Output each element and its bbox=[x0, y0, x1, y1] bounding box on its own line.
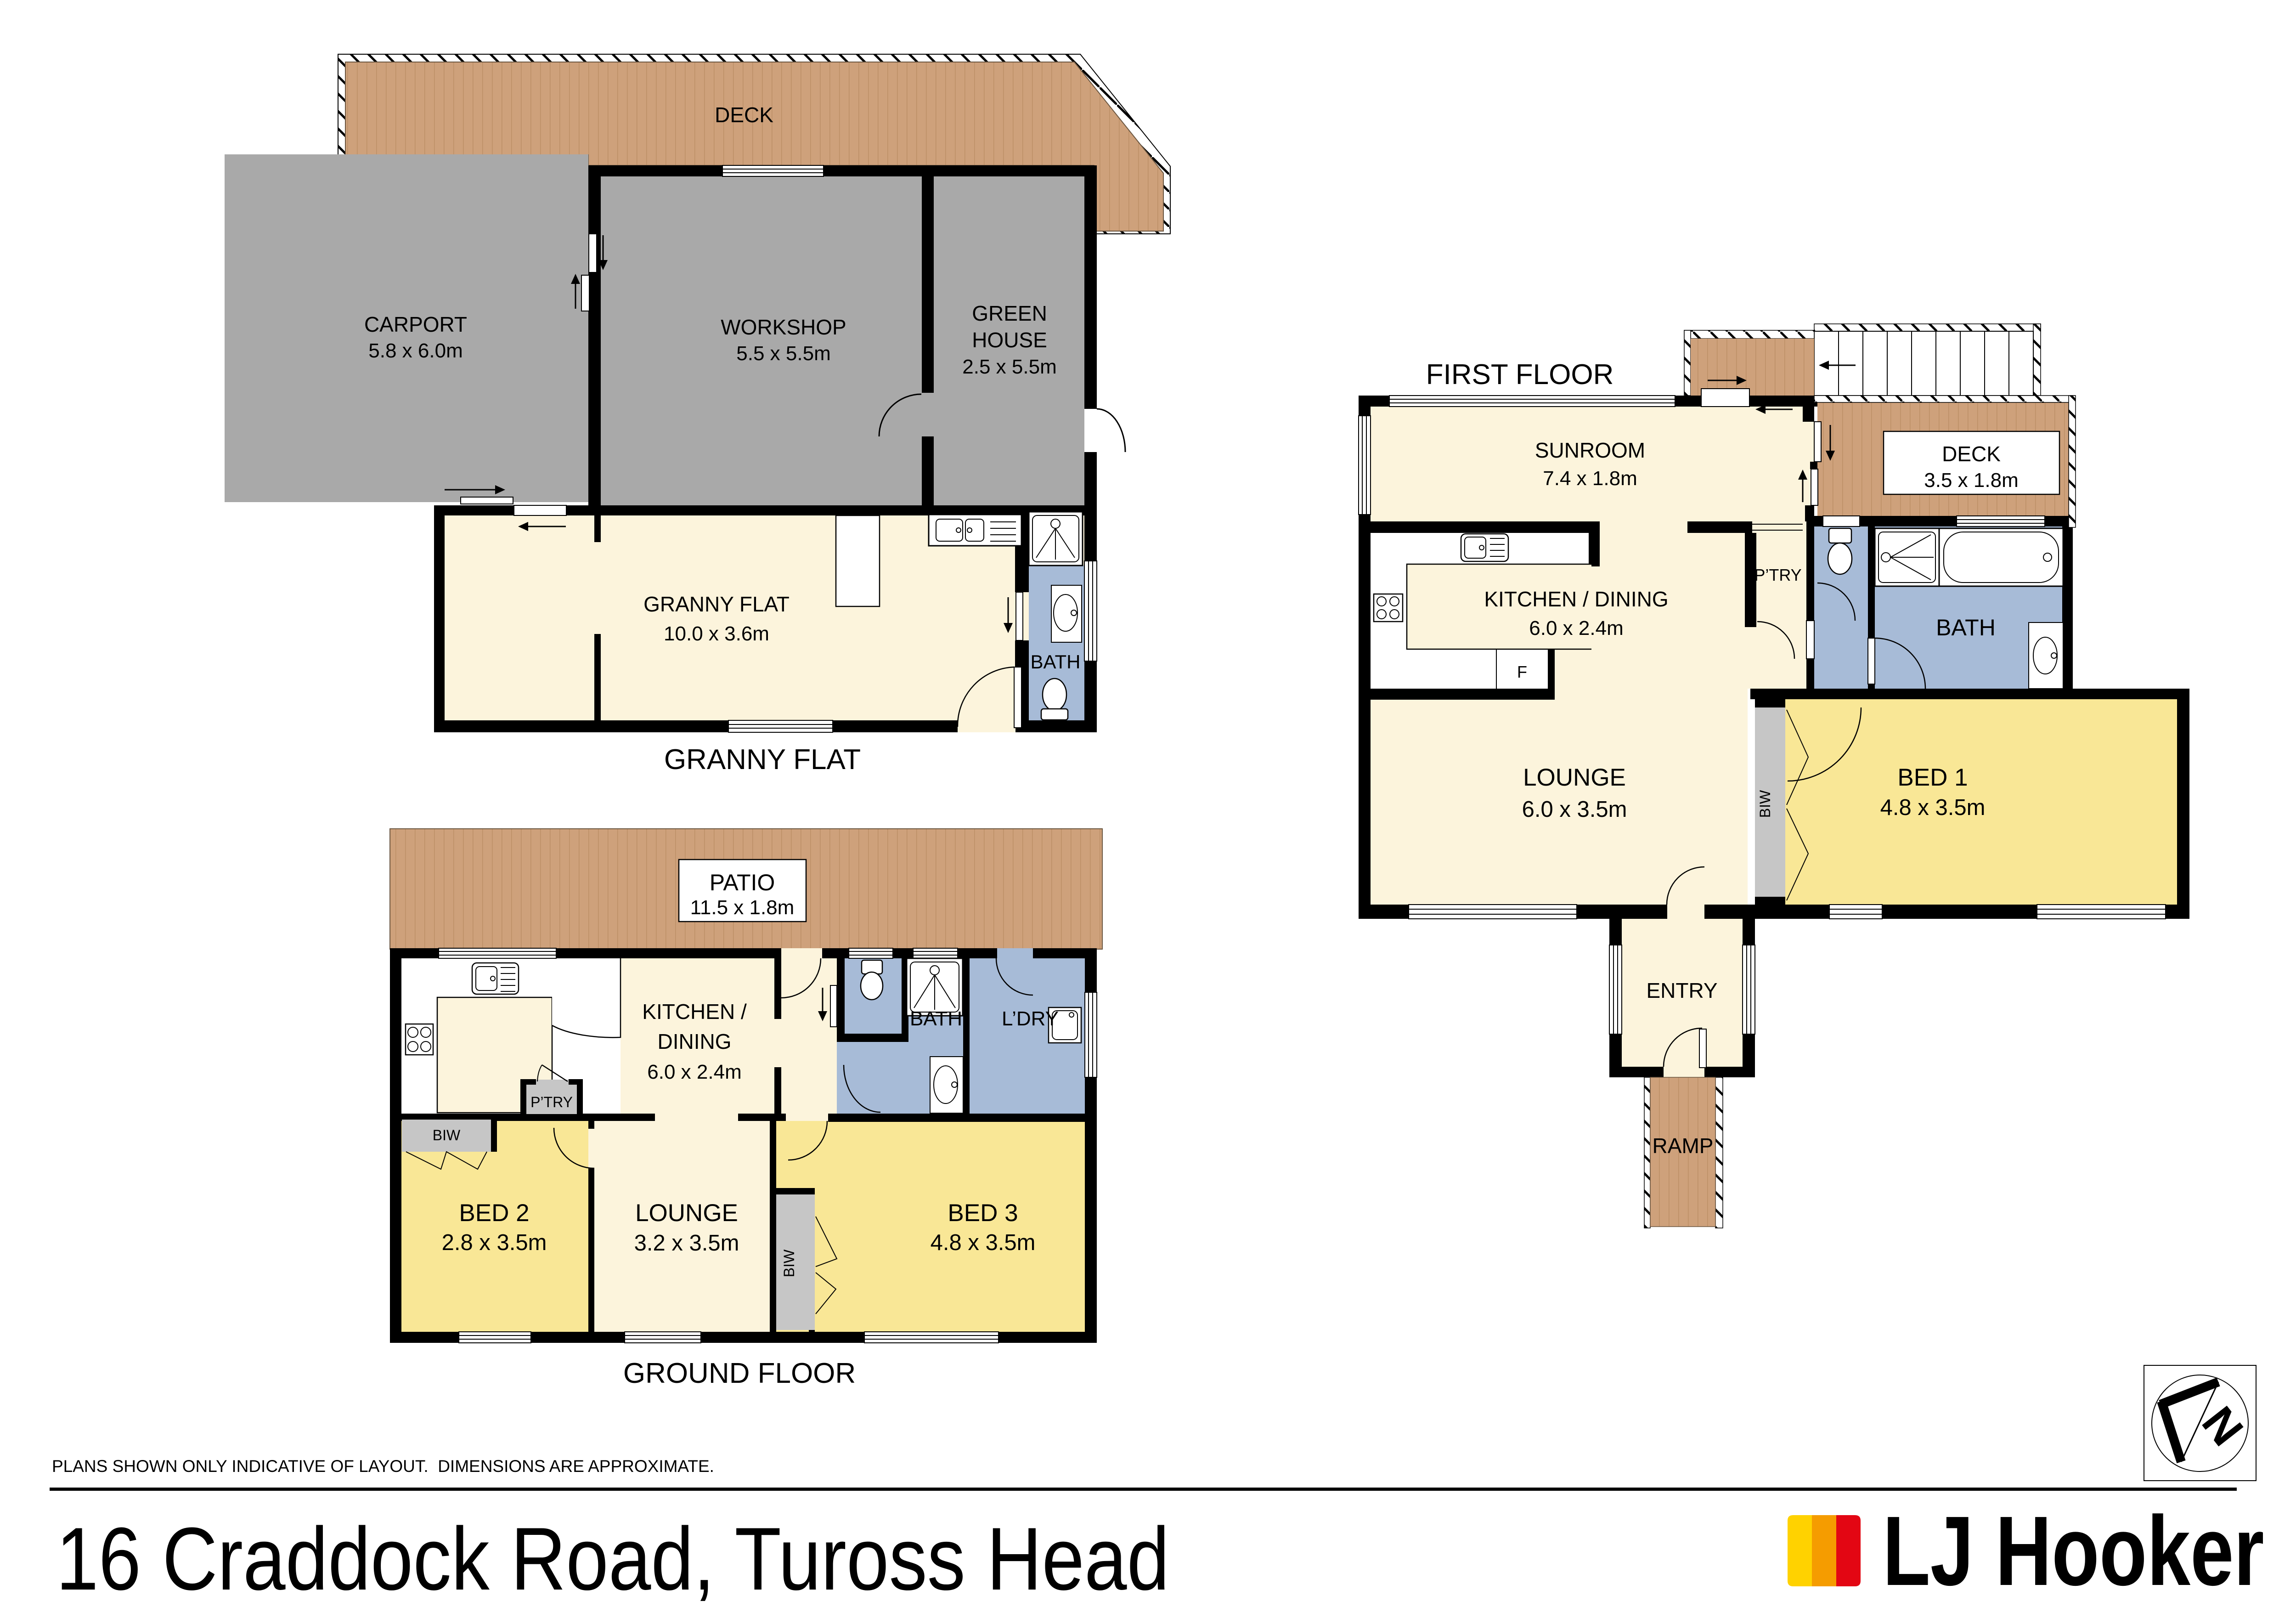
svg-text:11.5 x 1.8m: 11.5 x 1.8m bbox=[690, 896, 795, 919]
svg-text:L’DRY: L’DRY bbox=[1002, 1007, 1059, 1030]
svg-text:KITCHEN /: KITCHEN / bbox=[642, 1000, 747, 1024]
svg-text:CARPORT: CARPORT bbox=[364, 312, 467, 336]
svg-text:4.8 x 3.5m: 4.8 x 3.5m bbox=[1880, 795, 1986, 820]
svg-text:DECK: DECK bbox=[715, 103, 773, 127]
svg-text:5.5 x 5.5m: 5.5 x 5.5m bbox=[736, 342, 830, 365]
svg-text:6.0 x 2.4m: 6.0 x 2.4m bbox=[1529, 617, 1623, 639]
svg-text:3.2 x 3.5m: 3.2 x 3.5m bbox=[634, 1231, 739, 1256]
svg-text:GROUND FLOOR: GROUND FLOOR bbox=[623, 1358, 856, 1389]
svg-text:ENTRY: ENTRY bbox=[1646, 979, 1717, 1002]
svg-text:BED 1: BED 1 bbox=[1897, 764, 1968, 791]
svg-text:LOUNGE: LOUNGE bbox=[635, 1200, 738, 1227]
svg-text:PATIO: PATIO bbox=[710, 870, 775, 895]
svg-text:BATH: BATH bbox=[910, 1007, 962, 1030]
svg-text:GREEN: GREEN bbox=[972, 301, 1047, 325]
svg-text:BIW: BIW bbox=[433, 1127, 461, 1143]
svg-text:DINING: DINING bbox=[658, 1030, 732, 1053]
svg-text:HOUSE: HOUSE bbox=[972, 328, 1047, 352]
svg-text:BATH: BATH bbox=[1031, 651, 1081, 673]
svg-text:4.8 x 3.5m: 4.8 x 3.5m bbox=[931, 1230, 1036, 1255]
svg-text:PLANS SHOWN ONLY INDICATIVE OF: PLANS SHOWN ONLY INDICATIVE OF LAYOUT. D… bbox=[52, 1457, 714, 1476]
svg-text:BATH: BATH bbox=[1936, 615, 1996, 640]
svg-text:SUNROOM: SUNROOM bbox=[1535, 438, 1645, 462]
svg-text:BED 2: BED 2 bbox=[459, 1200, 529, 1227]
svg-text:P’TRY: P’TRY bbox=[530, 1094, 573, 1110]
svg-text:BED 3: BED 3 bbox=[948, 1200, 1018, 1227]
svg-text:RAMP: RAMP bbox=[1653, 1134, 1714, 1158]
svg-text:LJ Hooker: LJ Hooker bbox=[1883, 1496, 2264, 1607]
svg-text:5.8 x 6.0m: 5.8 x 6.0m bbox=[368, 340, 463, 362]
svg-text:WORKSHOP: WORKSHOP bbox=[721, 315, 846, 339]
svg-text:LOUNGE: LOUNGE bbox=[1523, 764, 1626, 791]
svg-text:DECK: DECK bbox=[1942, 442, 2001, 466]
svg-text:10.0 x 3.6m: 10.0 x 3.6m bbox=[664, 622, 769, 645]
svg-text:6.0 x 2.4m: 6.0 x 2.4m bbox=[647, 1061, 741, 1083]
svg-text:FIRST FLOOR: FIRST FLOOR bbox=[1426, 359, 1614, 390]
svg-text:3.5 x 1.8m: 3.5 x 1.8m bbox=[1924, 469, 2018, 492]
svg-text:KITCHEN / DINING: KITCHEN / DINING bbox=[1484, 587, 1668, 611]
svg-text:6.0 x 3.5m: 6.0 x 3.5m bbox=[1522, 797, 1627, 822]
svg-text:2.8 x 3.5m: 2.8 x 3.5m bbox=[442, 1230, 547, 1255]
svg-text:F: F bbox=[1517, 662, 1527, 681]
svg-text:GRANNY FLAT: GRANNY FLAT bbox=[664, 744, 861, 775]
svg-text:7.4 x 1.8m: 7.4 x 1.8m bbox=[1543, 467, 1637, 490]
svg-text:16 Craddock Road, Tuross Head: 16 Craddock Road, Tuross Head bbox=[56, 1509, 1169, 1609]
svg-text:BIW: BIW bbox=[781, 1249, 797, 1277]
svg-text:2.5 x 5.5m: 2.5 x 5.5m bbox=[962, 356, 1056, 378]
svg-text:BIW: BIW bbox=[1757, 790, 1773, 818]
svg-text:P’TRY: P’TRY bbox=[1754, 566, 1801, 584]
svg-text:GRANNY FLAT: GRANNY FLAT bbox=[643, 592, 790, 616]
